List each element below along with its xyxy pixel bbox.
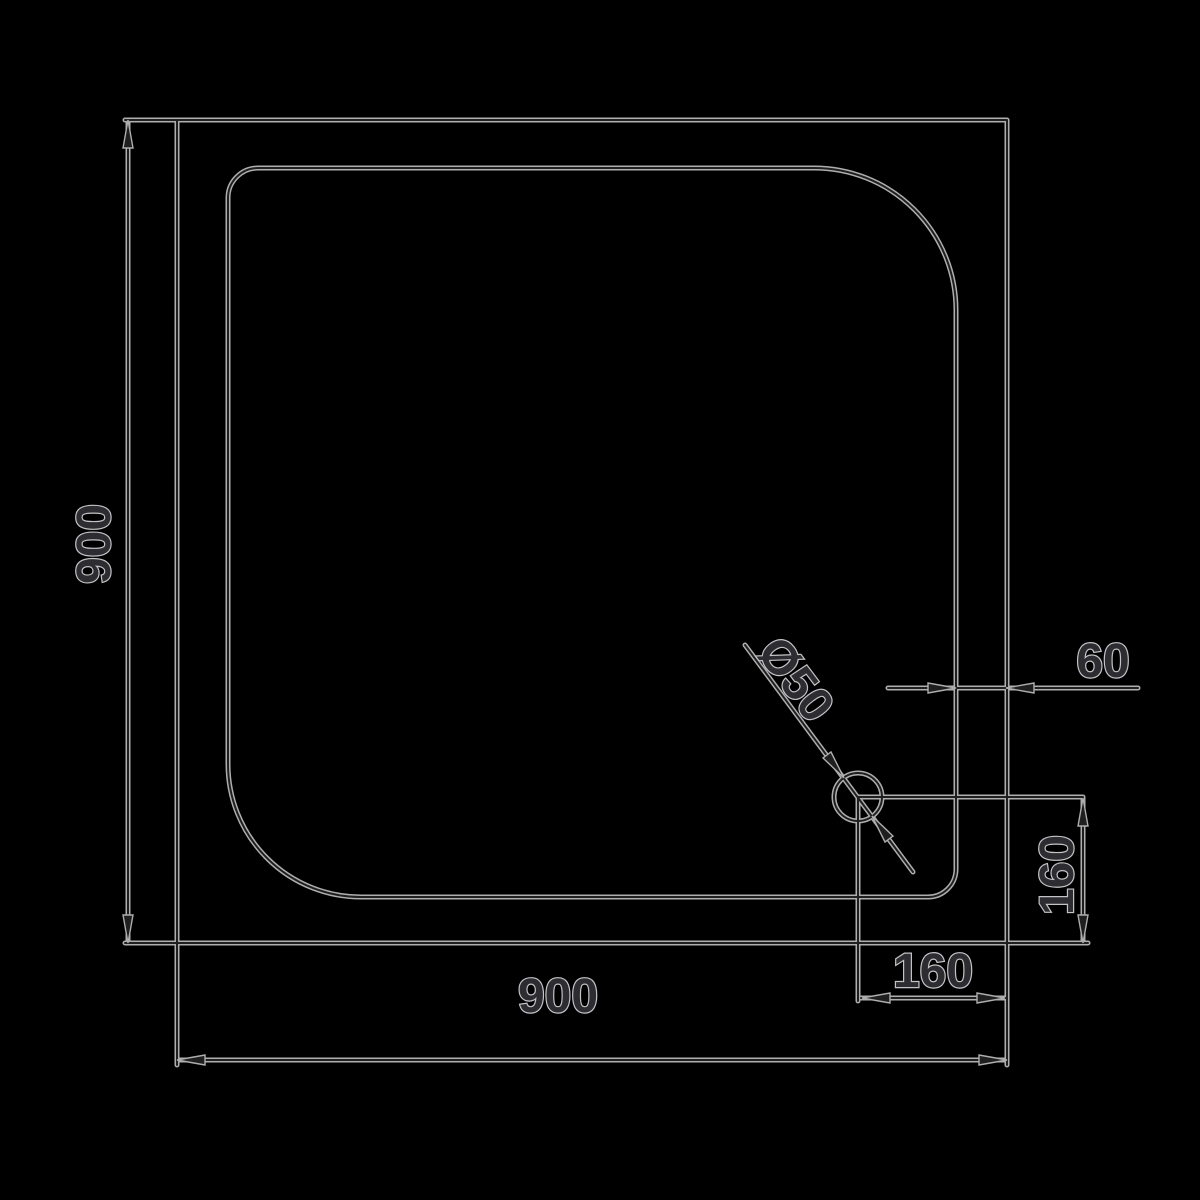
technical-drawing-page: 900 900 60 160 160 Ø50 [0,0,1200,1200]
dim-drain-offset-right-label: 160 [1031,835,1084,915]
arrow-60-right [928,683,956,693]
arrow-60-left [1006,683,1034,693]
dim-overall-width-label: 900 [518,970,598,1023]
dim-drain-offset-bottom-label: 160 [893,945,973,998]
shower-tray-blueprint: 900 900 60 160 160 Ø50 [0,0,1200,1200]
dim-rim-offset-label: 60 [1076,635,1129,688]
arrow-160h-left [862,993,890,1003]
dimension-arrows [123,120,1088,1065]
arrow-left-900-down [123,915,133,943]
drawing-lines-core [125,120,1138,1065]
arrow-160h-right [977,993,1005,1003]
arrow-left-900-up [123,120,133,148]
drawing-lines-halo [125,120,1138,1065]
arrow-drain-leader-lower [872,816,893,842]
arrow-bottom-900-left [177,1055,205,1065]
arrow-bottom-900-right [979,1055,1007,1065]
dim-drain-diameter-label: Ø50 [747,627,844,731]
arrow-160v-down [1078,915,1088,943]
dim-overall-depth-label: 900 [68,504,121,584]
arrow-160v-up [1078,798,1088,826]
arrow-drain-leader-upper [823,752,844,778]
